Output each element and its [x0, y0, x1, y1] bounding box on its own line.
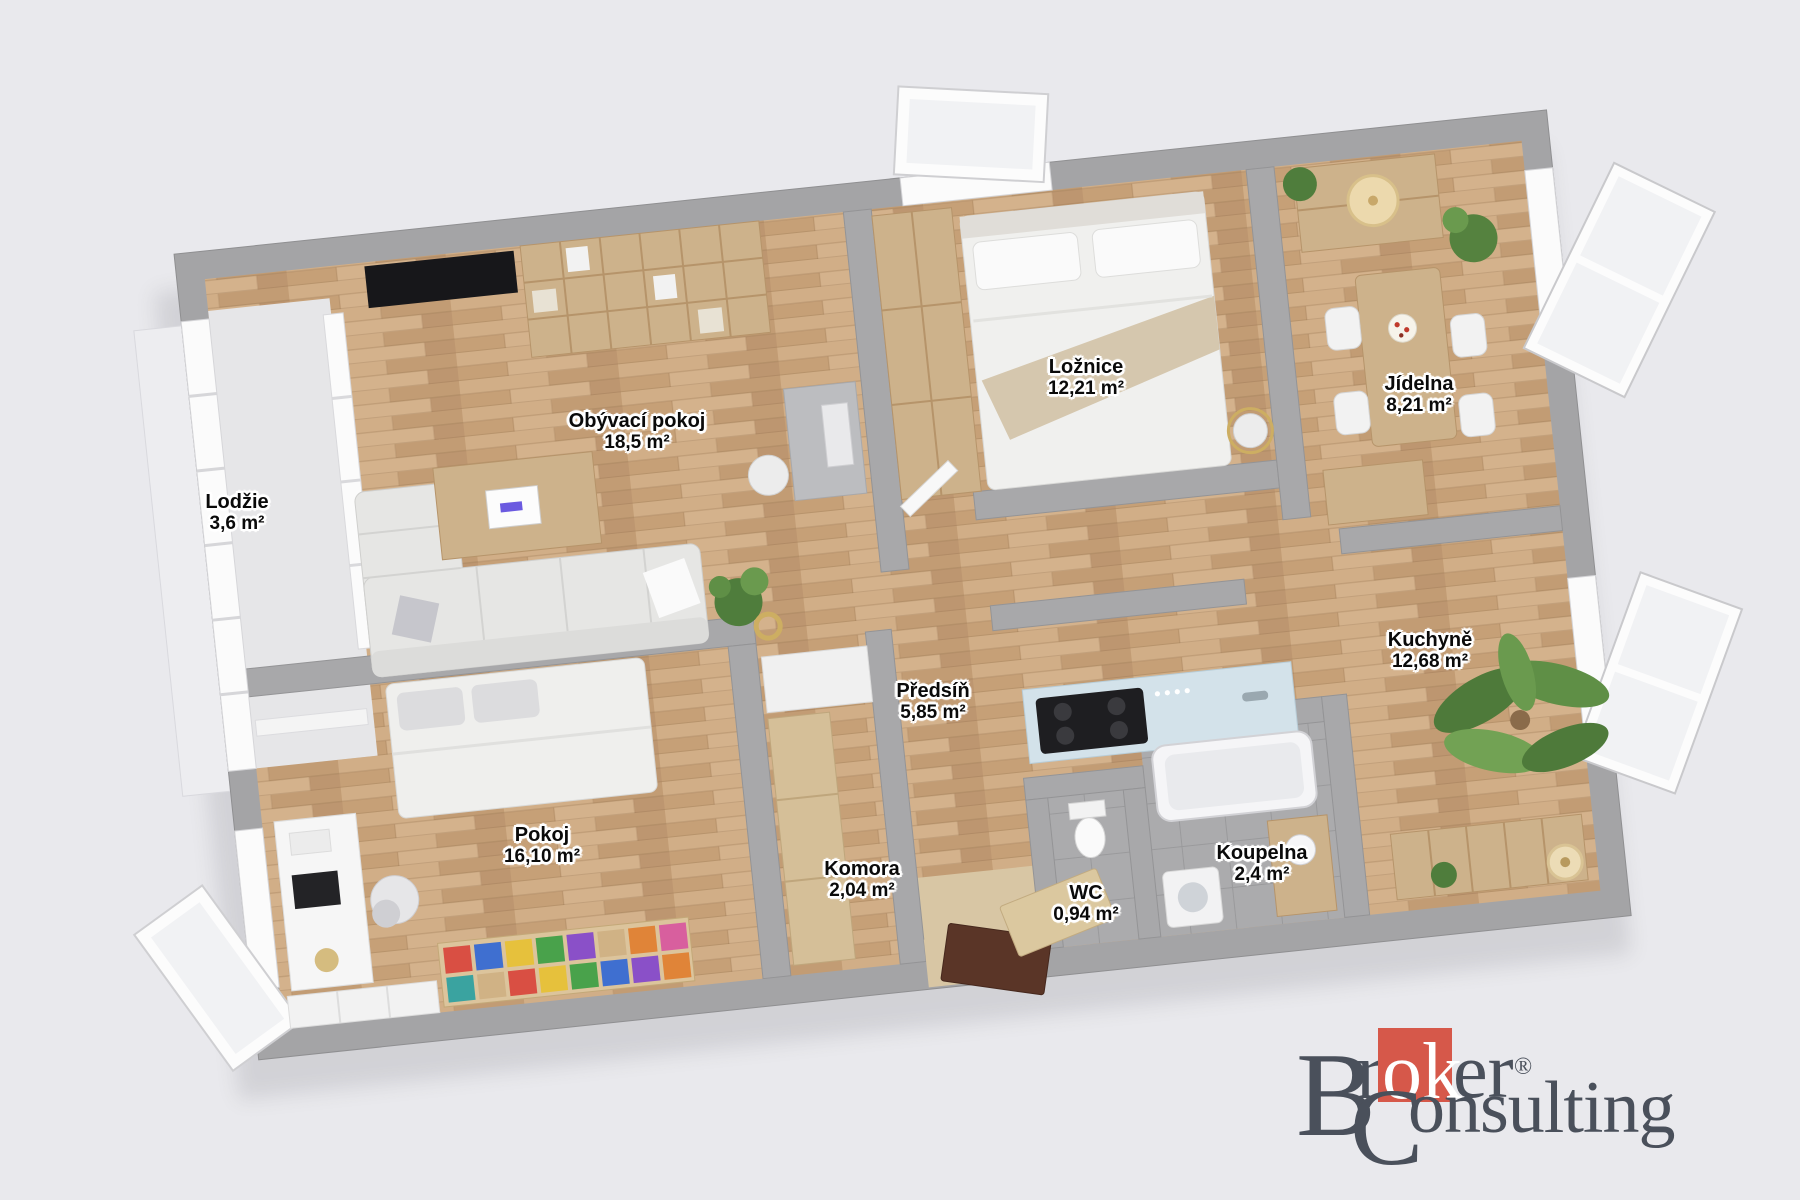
room-label-jidelna: Jídelna 8,21 m² — [1385, 373, 1454, 417]
room-label-kuchyne: Kuchyně 12,68 m² — [1388, 629, 1472, 673]
pokoj-desk — [274, 813, 373, 991]
floorplan-page: Lodžie 3,6 m² Obývací pokoj 18,5 m² Ložn… — [0, 0, 1800, 1200]
dining-cabinet — [1323, 460, 1428, 525]
double-bed — [959, 191, 1231, 490]
room-label-komora: Komora 2,04 m² — [824, 858, 900, 902]
pokoj-bed — [385, 657, 658, 818]
room-label-lodzie: Lodžie 3,6 m² — [205, 491, 268, 535]
room-label-koupelna: Koupelna 2,4 m² — [1216, 842, 1307, 886]
broker-consulting-logo: B r ok er ® C onsulting — [1290, 1015, 1780, 1195]
room-label-obyvaci-pokoj: Obývací pokoj 18,5 m² — [569, 410, 706, 454]
laptop-black — [292, 871, 341, 910]
logo-letters-onsulting: onsulting — [1408, 1071, 1674, 1145]
toilet-tank — [1068, 800, 1105, 820]
pillow — [1092, 219, 1201, 278]
room-label-pokoj: Pokoj 16,10 m² — [504, 824, 580, 868]
pillow — [396, 686, 466, 731]
komora-cabinet-white — [761, 646, 872, 713]
room-label-loznice: Ložnice 12,21 m² — [1048, 356, 1124, 400]
pillow — [471, 679, 541, 724]
cooktop — [1035, 687, 1148, 754]
room-label-predsin: Předsíň 5,85 m² — [896, 680, 969, 724]
room-label-wc: WC 0,94 m² — [1053, 882, 1118, 926]
pillow — [972, 232, 1081, 291]
coffee-table — [433, 452, 602, 560]
bedroom-window-open-leaf — [894, 86, 1048, 182]
sofa-pillow — [392, 595, 439, 642]
